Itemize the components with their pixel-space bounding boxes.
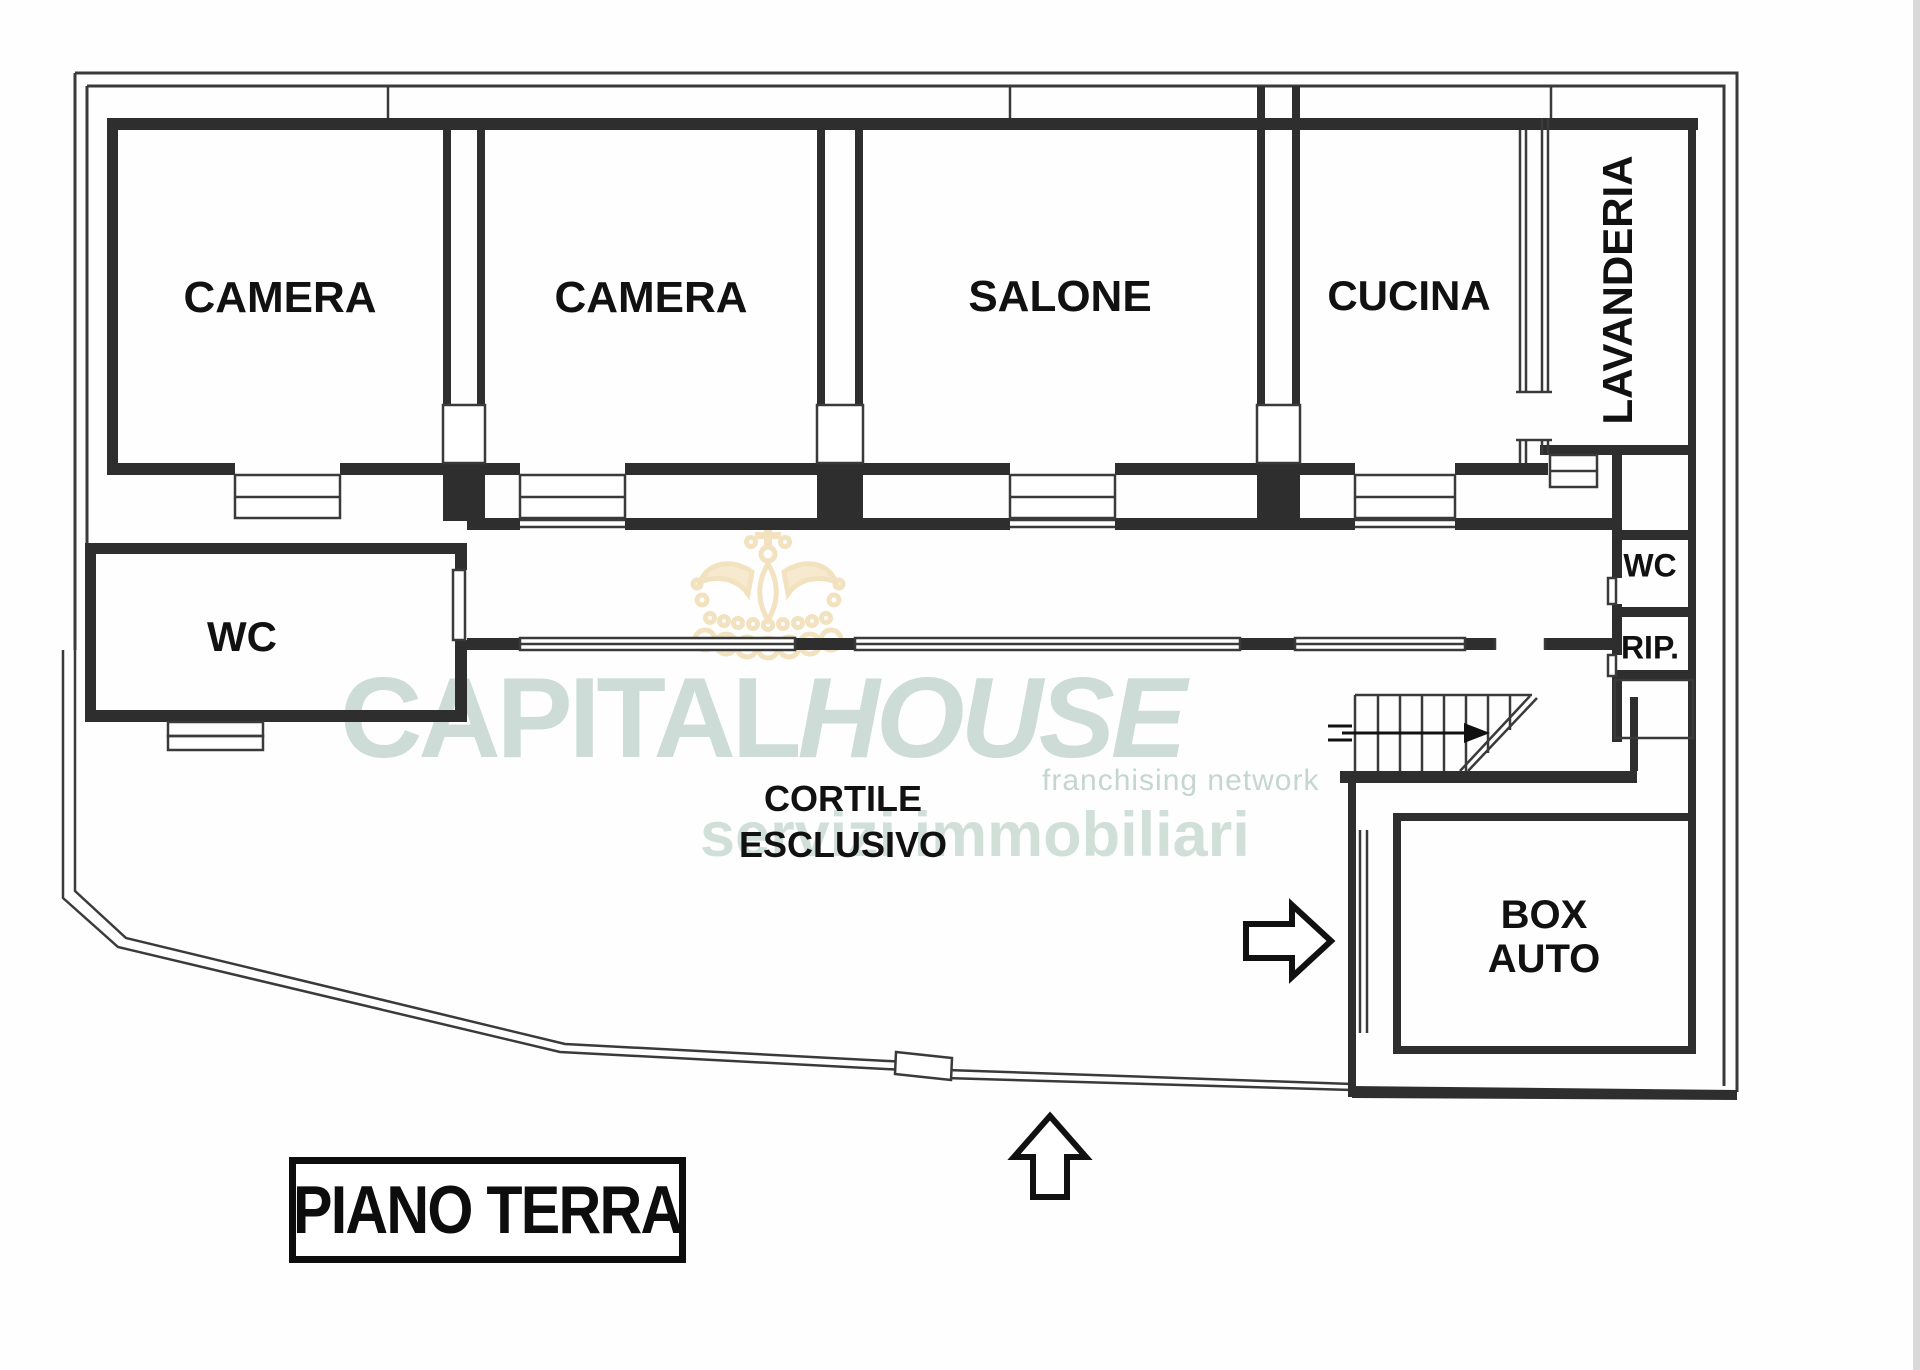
floor-plan-page: CAPITALHOUSE franchising network servizi… bbox=[0, 0, 1920, 1370]
cortile-line-1: CORTILE bbox=[739, 776, 947, 822]
label-layer: CAMERA CAMERA SALONE CUCINA LAVANDERIA W… bbox=[0, 0, 1920, 1370]
box-auto-line-2: AUTO bbox=[1488, 937, 1601, 981]
cortile-line-2: ESCLUSIVO bbox=[739, 822, 947, 868]
room-label-wc-right: WC bbox=[1623, 548, 1676, 585]
room-label-box-auto: BOX AUTO bbox=[1488, 893, 1601, 981]
room-label-wc-left: WC bbox=[207, 613, 277, 661]
room-label-salone: SALONE bbox=[968, 272, 1151, 322]
room-label-cortile: CORTILE ESCLUSIVO bbox=[739, 776, 947, 868]
box-auto-line-1: BOX bbox=[1488, 893, 1601, 937]
room-label-camera-2: CAMERA bbox=[554, 273, 747, 323]
room-label-rip: RIP. bbox=[1621, 630, 1679, 667]
room-label-camera-1: CAMERA bbox=[183, 273, 376, 323]
scan-edge-artifact bbox=[1913, 0, 1920, 1370]
room-label-cucina: CUCINA bbox=[1327, 272, 1490, 320]
plan-title-box: PIANO TERRA bbox=[289, 1157, 686, 1263]
plan-title: PIANO TERRA bbox=[293, 1171, 681, 1249]
room-label-lavanderia: LAVANDERIA bbox=[1594, 155, 1642, 424]
